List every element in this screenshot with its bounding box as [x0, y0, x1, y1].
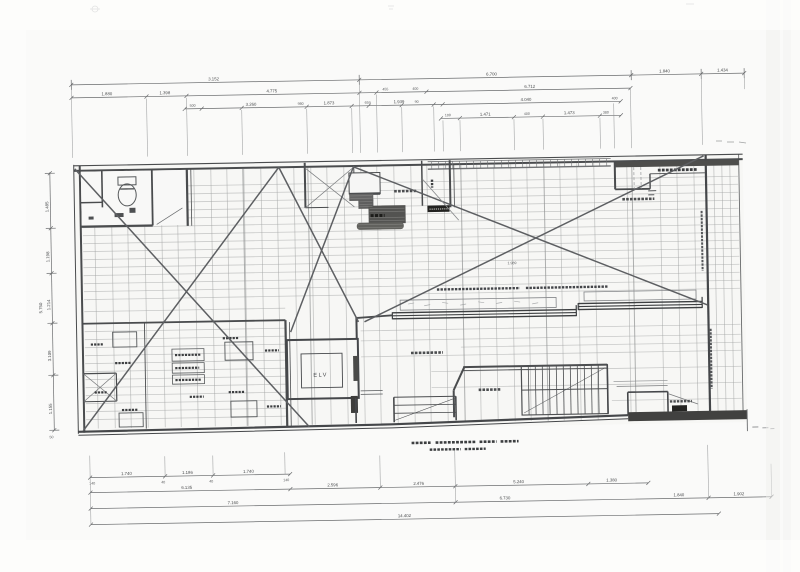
svg-text:1.380: 1.380	[606, 477, 617, 482]
svg-text:1.485: 1.485	[44, 201, 49, 212]
svg-text:14.402: 14.402	[398, 513, 412, 518]
svg-text:ELV: ELV	[313, 372, 328, 378]
svg-text:1.186: 1.186	[182, 470, 193, 475]
svg-text:455: 455	[382, 87, 388, 91]
svg-text:1.880: 1.880	[101, 91, 112, 96]
svg-text:659: 659	[365, 101, 371, 105]
svg-text:1.873: 1.873	[324, 100, 335, 105]
svg-text:6.712: 6.712	[524, 84, 535, 89]
svg-text:400: 400	[612, 96, 618, 100]
svg-text:400: 400	[412, 87, 418, 91]
svg-text:1.471: 1.471	[480, 112, 491, 117]
svg-text:50: 50	[49, 435, 53, 439]
svg-text:3.152: 3.152	[208, 76, 219, 81]
svg-text:1.740: 1.740	[243, 469, 254, 474]
svg-text:4.775: 4.775	[266, 88, 277, 93]
svg-text:1.434: 1.434	[717, 67, 728, 72]
svg-text:380: 380	[603, 111, 609, 115]
svg-text:1.740: 1.740	[121, 471, 132, 476]
svg-text:90: 90	[415, 100, 419, 104]
svg-text:4.040: 4.040	[521, 97, 532, 102]
svg-text:1.155: 1.155	[48, 403, 53, 414]
svg-text:3.109: 3.109	[47, 350, 52, 361]
svg-text:1.473: 1.473	[564, 110, 575, 115]
svg-text:400: 400	[524, 112, 530, 116]
svg-text:100: 100	[445, 113, 451, 117]
svg-text:500: 500	[190, 104, 196, 108]
svg-text:5.240: 5.240	[513, 479, 524, 484]
svg-text:1.840: 1.840	[659, 68, 670, 73]
svg-text:1.198: 1.198	[45, 251, 50, 262]
svg-text:1.902: 1.902	[733, 491, 744, 496]
svg-text:40: 40	[161, 480, 165, 484]
svg-text:140: 140	[283, 478, 289, 482]
svg-text:6.700: 6.700	[486, 71, 497, 76]
svg-text:1.840: 1.840	[673, 492, 684, 497]
svg-text:3.260: 3.260	[246, 102, 257, 107]
svg-text:40: 40	[209, 479, 213, 483]
svg-text:7.160: 7.160	[228, 500, 239, 505]
svg-text:1.939: 1.939	[394, 99, 405, 104]
svg-text:980: 980	[298, 102, 304, 106]
svg-text:1.214: 1.214	[46, 299, 51, 310]
svg-text:6.135: 6.135	[181, 485, 192, 490]
svg-text:6.730: 6.730	[500, 495, 511, 500]
svg-text:1.989: 1.989	[507, 261, 516, 265]
svg-text:5.750: 5.750	[38, 302, 43, 313]
svg-text:1.398: 1.398	[159, 90, 170, 95]
svg-text:2.596: 2.596	[327, 482, 338, 487]
svg-text:2.476: 2.476	[413, 481, 424, 486]
